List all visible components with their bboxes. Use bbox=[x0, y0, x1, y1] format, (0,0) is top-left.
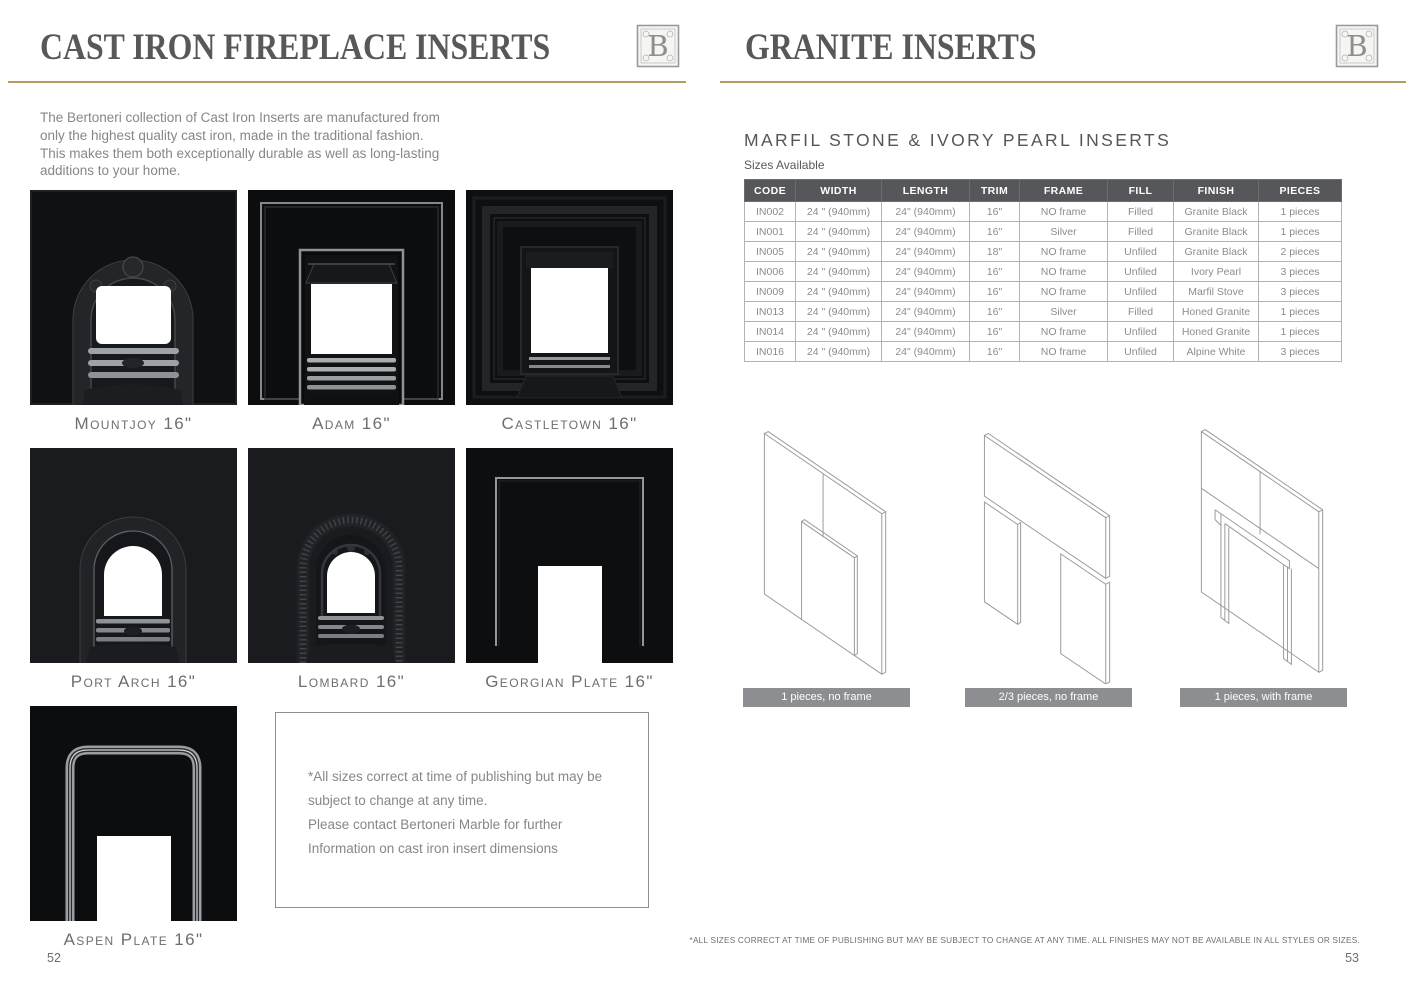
aspen-plate-insert-image bbox=[30, 706, 237, 921]
table-cell: IN013 bbox=[745, 302, 796, 322]
sizes-table: CODE WIDTH LENGTH TRIM FRAME FILL FINISH… bbox=[744, 179, 1342, 362]
page-title: CAST IRON FIREPLACE INSERTS bbox=[40, 26, 550, 69]
table-cell: 24 " (940mm) bbox=[796, 282, 882, 302]
product-card-port-arch: Port Arch 16" bbox=[30, 448, 237, 692]
table-cell: Marfil Stove bbox=[1174, 282, 1259, 302]
table-cell: 24 " (940mm) bbox=[796, 302, 882, 322]
table-cell: NO frame bbox=[1020, 322, 1108, 342]
table-cell: 1 pieces bbox=[1259, 222, 1342, 242]
table-cell: NO frame bbox=[1020, 342, 1108, 362]
table-cell: 3 pieces bbox=[1259, 262, 1342, 282]
table-cell: 24" (940mm) bbox=[882, 222, 970, 242]
table-cell: 24 " (940mm) bbox=[796, 222, 882, 242]
table-cell: 24 " (940mm) bbox=[796, 342, 882, 362]
figure-two-three-pieces-no-frame: 2/3 pieces, no frame bbox=[965, 412, 1132, 707]
table-cell: 16" bbox=[970, 222, 1020, 242]
table-cell: 24" (940mm) bbox=[882, 262, 970, 282]
table-cell: Unfiled bbox=[1108, 282, 1174, 302]
port-arch-insert-image bbox=[30, 448, 237, 663]
table-cell: Honed Granite bbox=[1174, 302, 1259, 322]
title-rule bbox=[8, 81, 686, 83]
table-cell: NO frame bbox=[1020, 262, 1108, 282]
sizes-available-label: Sizes Available bbox=[744, 158, 825, 172]
svg-text:B: B bbox=[1346, 29, 1367, 63]
page-title: GRANITE INSERTS bbox=[745, 26, 1037, 69]
table-cell: Unfiled bbox=[1108, 262, 1174, 282]
table-cell: IN016 bbox=[745, 342, 796, 362]
table-cell: Silver bbox=[1020, 222, 1108, 242]
page-number-right: 53 bbox=[1345, 951, 1359, 965]
table-cell: 24" (940mm) bbox=[882, 202, 970, 222]
table-cell: IN001 bbox=[745, 222, 796, 242]
castletown-insert-image bbox=[466, 190, 673, 405]
table-cell: Filled bbox=[1108, 302, 1174, 322]
intro-paragraph: The Bertoneri collection of Cast Iron In… bbox=[40, 109, 452, 180]
figure-caption: 2/3 pieces, no frame bbox=[965, 688, 1132, 707]
table-row: IN00224 " (940mm)24" (940mm)16"NO frameF… bbox=[745, 202, 1342, 222]
page-cast-iron-inserts: CAST IRON FIREPLACE INSERTS B The Berton… bbox=[0, 0, 703, 994]
bertoneri-monogram-logo-icon: B bbox=[636, 24, 680, 68]
table-row: IN01324 " (940mm)24" (940mm)16"SilverFil… bbox=[745, 302, 1342, 322]
sizes-table-body: IN00224 " (940mm)24" (940mm)16"NO frameF… bbox=[745, 202, 1342, 362]
table-cell: Alpine White bbox=[1174, 342, 1259, 362]
table-cell: 24" (940mm) bbox=[882, 322, 970, 342]
table-cell: Filled bbox=[1108, 202, 1174, 222]
product-card-aspen-plate: Aspen Plate 16" bbox=[30, 706, 237, 950]
table-cell: 24" (940mm) bbox=[882, 302, 970, 322]
table-cell: Silver bbox=[1020, 302, 1108, 322]
title-rule bbox=[720, 81, 1406, 83]
table-cell: IN005 bbox=[745, 242, 796, 262]
table-cell: IN006 bbox=[745, 262, 796, 282]
page-number-left: 52 bbox=[47, 951, 61, 965]
table-cell: 16" bbox=[970, 282, 1020, 302]
table-cell: NO frame bbox=[1020, 242, 1108, 262]
table-cell: IN009 bbox=[745, 282, 796, 302]
figure-one-piece-with-frame: 1 pieces, with frame bbox=[1180, 412, 1347, 707]
product-label: Port Arch 16" bbox=[30, 672, 237, 692]
table-cell: 2 pieces bbox=[1259, 242, 1342, 262]
product-label: Castletown 16" bbox=[466, 414, 673, 434]
table-cell: 3 pieces bbox=[1259, 342, 1342, 362]
table-cell: 18" bbox=[970, 242, 1020, 262]
table-cell: 24" (940mm) bbox=[882, 242, 970, 262]
table-cell: Granite Black bbox=[1174, 242, 1259, 262]
table-cell: Filled bbox=[1108, 222, 1174, 242]
lombard-insert-image bbox=[248, 448, 455, 663]
table-cell: 24" (940mm) bbox=[882, 342, 970, 362]
table-row: IN00624 " (940mm)24" (940mm)16"NO frameU… bbox=[745, 262, 1342, 282]
table-cell: 24 " (940mm) bbox=[796, 202, 882, 222]
insert-diagram-with-frame bbox=[1180, 412, 1347, 684]
product-label: Adam 16" bbox=[248, 414, 455, 434]
georgian-plate-insert-image bbox=[466, 448, 673, 663]
bertoneri-monogram-logo-icon: B bbox=[1335, 24, 1379, 68]
footnote: *ALL SIZES CORRECT AT TIME OF PUBLISHING… bbox=[690, 936, 1360, 945]
product-card-mountjoy: Mountjoy 16" bbox=[30, 190, 237, 434]
table-cell: 24 " (940mm) bbox=[796, 242, 882, 262]
col-header: WIDTH bbox=[796, 180, 882, 202]
table-cell: Granite Black bbox=[1174, 202, 1259, 222]
product-label: Lombard 16" bbox=[248, 672, 455, 692]
insert-diagram-two-three-pieces bbox=[965, 412, 1132, 684]
adam-insert-image bbox=[248, 190, 455, 405]
table-cell: 24 " (940mm) bbox=[796, 262, 882, 282]
table-cell: NO frame bbox=[1020, 282, 1108, 302]
col-header: FILL bbox=[1108, 180, 1174, 202]
figure-one-piece-no-frame: 1 pieces, no frame bbox=[743, 412, 910, 707]
table-cell: 16" bbox=[970, 262, 1020, 282]
table-row: IN01424 " (940mm)24" (940mm)16"NO frameU… bbox=[745, 322, 1342, 342]
table-cell: NO frame bbox=[1020, 202, 1108, 222]
col-header: PIECES bbox=[1259, 180, 1342, 202]
table-cell: 24" (940mm) bbox=[882, 282, 970, 302]
section-title: MARFIL STONE & IVORY PEARL INSERTS bbox=[744, 130, 1171, 151]
col-header: CODE bbox=[745, 180, 796, 202]
table-cell: IN014 bbox=[745, 322, 796, 342]
col-header: FRAME bbox=[1020, 180, 1108, 202]
product-card-georgian-plate: Georgian Plate 16" bbox=[466, 448, 673, 692]
table-cell: IN002 bbox=[745, 202, 796, 222]
svg-text:B: B bbox=[647, 29, 668, 63]
table-cell: Ivory Pearl bbox=[1174, 262, 1259, 282]
product-label: Mountjoy 16" bbox=[30, 414, 237, 434]
col-header: LENGTH bbox=[882, 180, 970, 202]
table-cell: 1 pieces bbox=[1259, 302, 1342, 322]
col-header: TRIM bbox=[970, 180, 1020, 202]
figure-caption: 1 pieces, with frame bbox=[1180, 688, 1347, 707]
table-cell: 1 pieces bbox=[1259, 202, 1342, 222]
table-cell: Granite Black bbox=[1174, 222, 1259, 242]
table-cell: Honed Granite bbox=[1174, 322, 1259, 342]
mountjoy-insert-image bbox=[30, 190, 237, 405]
table-cell: 16" bbox=[970, 322, 1020, 342]
table-row: IN00524 " (940mm)24" (940mm)18"NO frameU… bbox=[745, 242, 1342, 262]
product-card-adam: Adam 16" bbox=[248, 190, 455, 434]
col-header: FINISH bbox=[1174, 180, 1259, 202]
product-label: Georgian Plate 16" bbox=[466, 672, 673, 692]
figure-caption: 1 pieces, no frame bbox=[743, 688, 910, 707]
table-cell: 16" bbox=[970, 342, 1020, 362]
sizes-table-header: CODE WIDTH LENGTH TRIM FRAME FILL FINISH… bbox=[745, 180, 1342, 202]
product-label: Aspen Plate 16" bbox=[30, 930, 237, 950]
table-cell: 16" bbox=[970, 302, 1020, 322]
sizes-disclaimer-box: *All sizes correct at time of publishing… bbox=[275, 712, 649, 908]
product-card-castletown: Castletown 16" bbox=[466, 190, 673, 434]
insert-diagram-one-piece bbox=[743, 412, 910, 684]
table-cell: 24 " (940mm) bbox=[796, 322, 882, 342]
table-row: IN00924 " (940mm)24" (940mm)16"NO frameU… bbox=[745, 282, 1342, 302]
table-row: IN00124 " (940mm)24" (940mm)16"SilverFil… bbox=[745, 222, 1342, 242]
catalog-spread: CAST IRON FIREPLACE INSERTS B The Berton… bbox=[0, 0, 1406, 994]
page-granite-inserts: GRANITE INSERTS B MARFIL STONE & IVORY P… bbox=[703, 0, 1406, 994]
table-cell: Unfiled bbox=[1108, 342, 1174, 362]
table-cell: Unfiled bbox=[1108, 242, 1174, 262]
table-row: IN01624 " (940mm)24" (940mm)16"NO frameU… bbox=[745, 342, 1342, 362]
table-cell: 1 pieces bbox=[1259, 322, 1342, 342]
table-cell: 3 pieces bbox=[1259, 282, 1342, 302]
table-cell: Unfiled bbox=[1108, 322, 1174, 342]
table-cell: 16" bbox=[970, 202, 1020, 222]
product-card-lombard: Lombard 16" bbox=[248, 448, 455, 692]
